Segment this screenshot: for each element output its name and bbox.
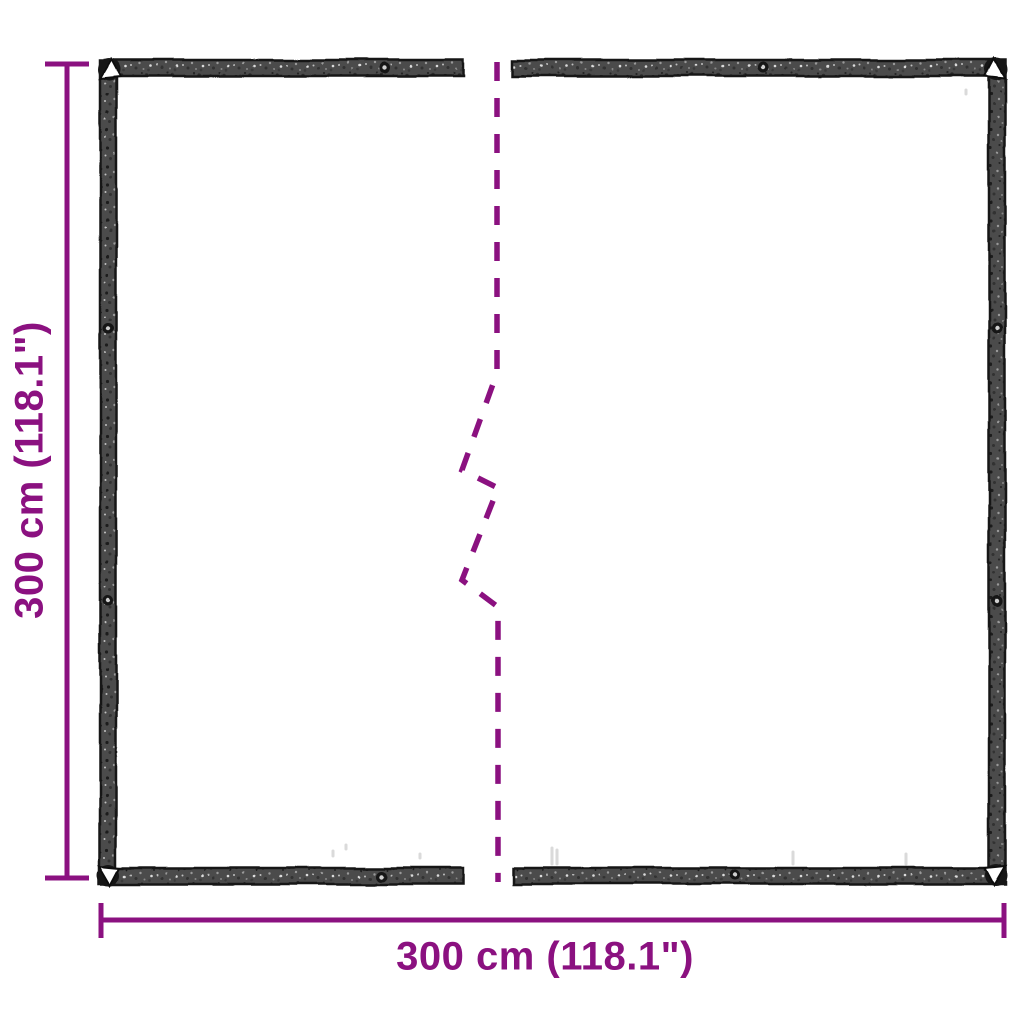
product-dimension-diagram: 300 cm (118.1") 300 cm (118.1")	[0, 0, 1024, 1024]
corner-reinforcement-bottom-left	[98, 864, 120, 886]
grommet-left-edge-lower	[103, 596, 114, 607]
tarp	[98, 58, 1007, 886]
grommet-top-left-panel	[379, 63, 390, 74]
corner-reinforcement-bottom-right	[985, 864, 1007, 886]
tarp-illustration	[0, 0, 1024, 1024]
break-line	[462, 62, 498, 882]
sketch-marks	[333, 90, 966, 864]
corner-reinforcement-top-right	[985, 58, 1007, 80]
grommet-top-right-panel	[758, 62, 769, 73]
grommet-right-edge-upper	[992, 323, 1003, 334]
grommet-right-edge-lower	[992, 596, 1003, 607]
grommet-left-edge-upper	[103, 324, 114, 335]
grommet-bottom-left-panel	[376, 871, 387, 882]
corner-reinforcement-top-left	[98, 58, 120, 80]
width-dimension-line	[101, 903, 1004, 938]
width-dimension-label: 300 cm (118.1")	[396, 935, 694, 980]
height-dimension-label: 300 cm (118.1")	[8, 321, 53, 619]
tarp-left-panel-border	[100, 60, 463, 884]
tarp-right-panel-border	[513, 60, 1005, 884]
grommets	[103, 62, 1003, 882]
grommet-bottom-right-panel	[730, 870, 741, 881]
